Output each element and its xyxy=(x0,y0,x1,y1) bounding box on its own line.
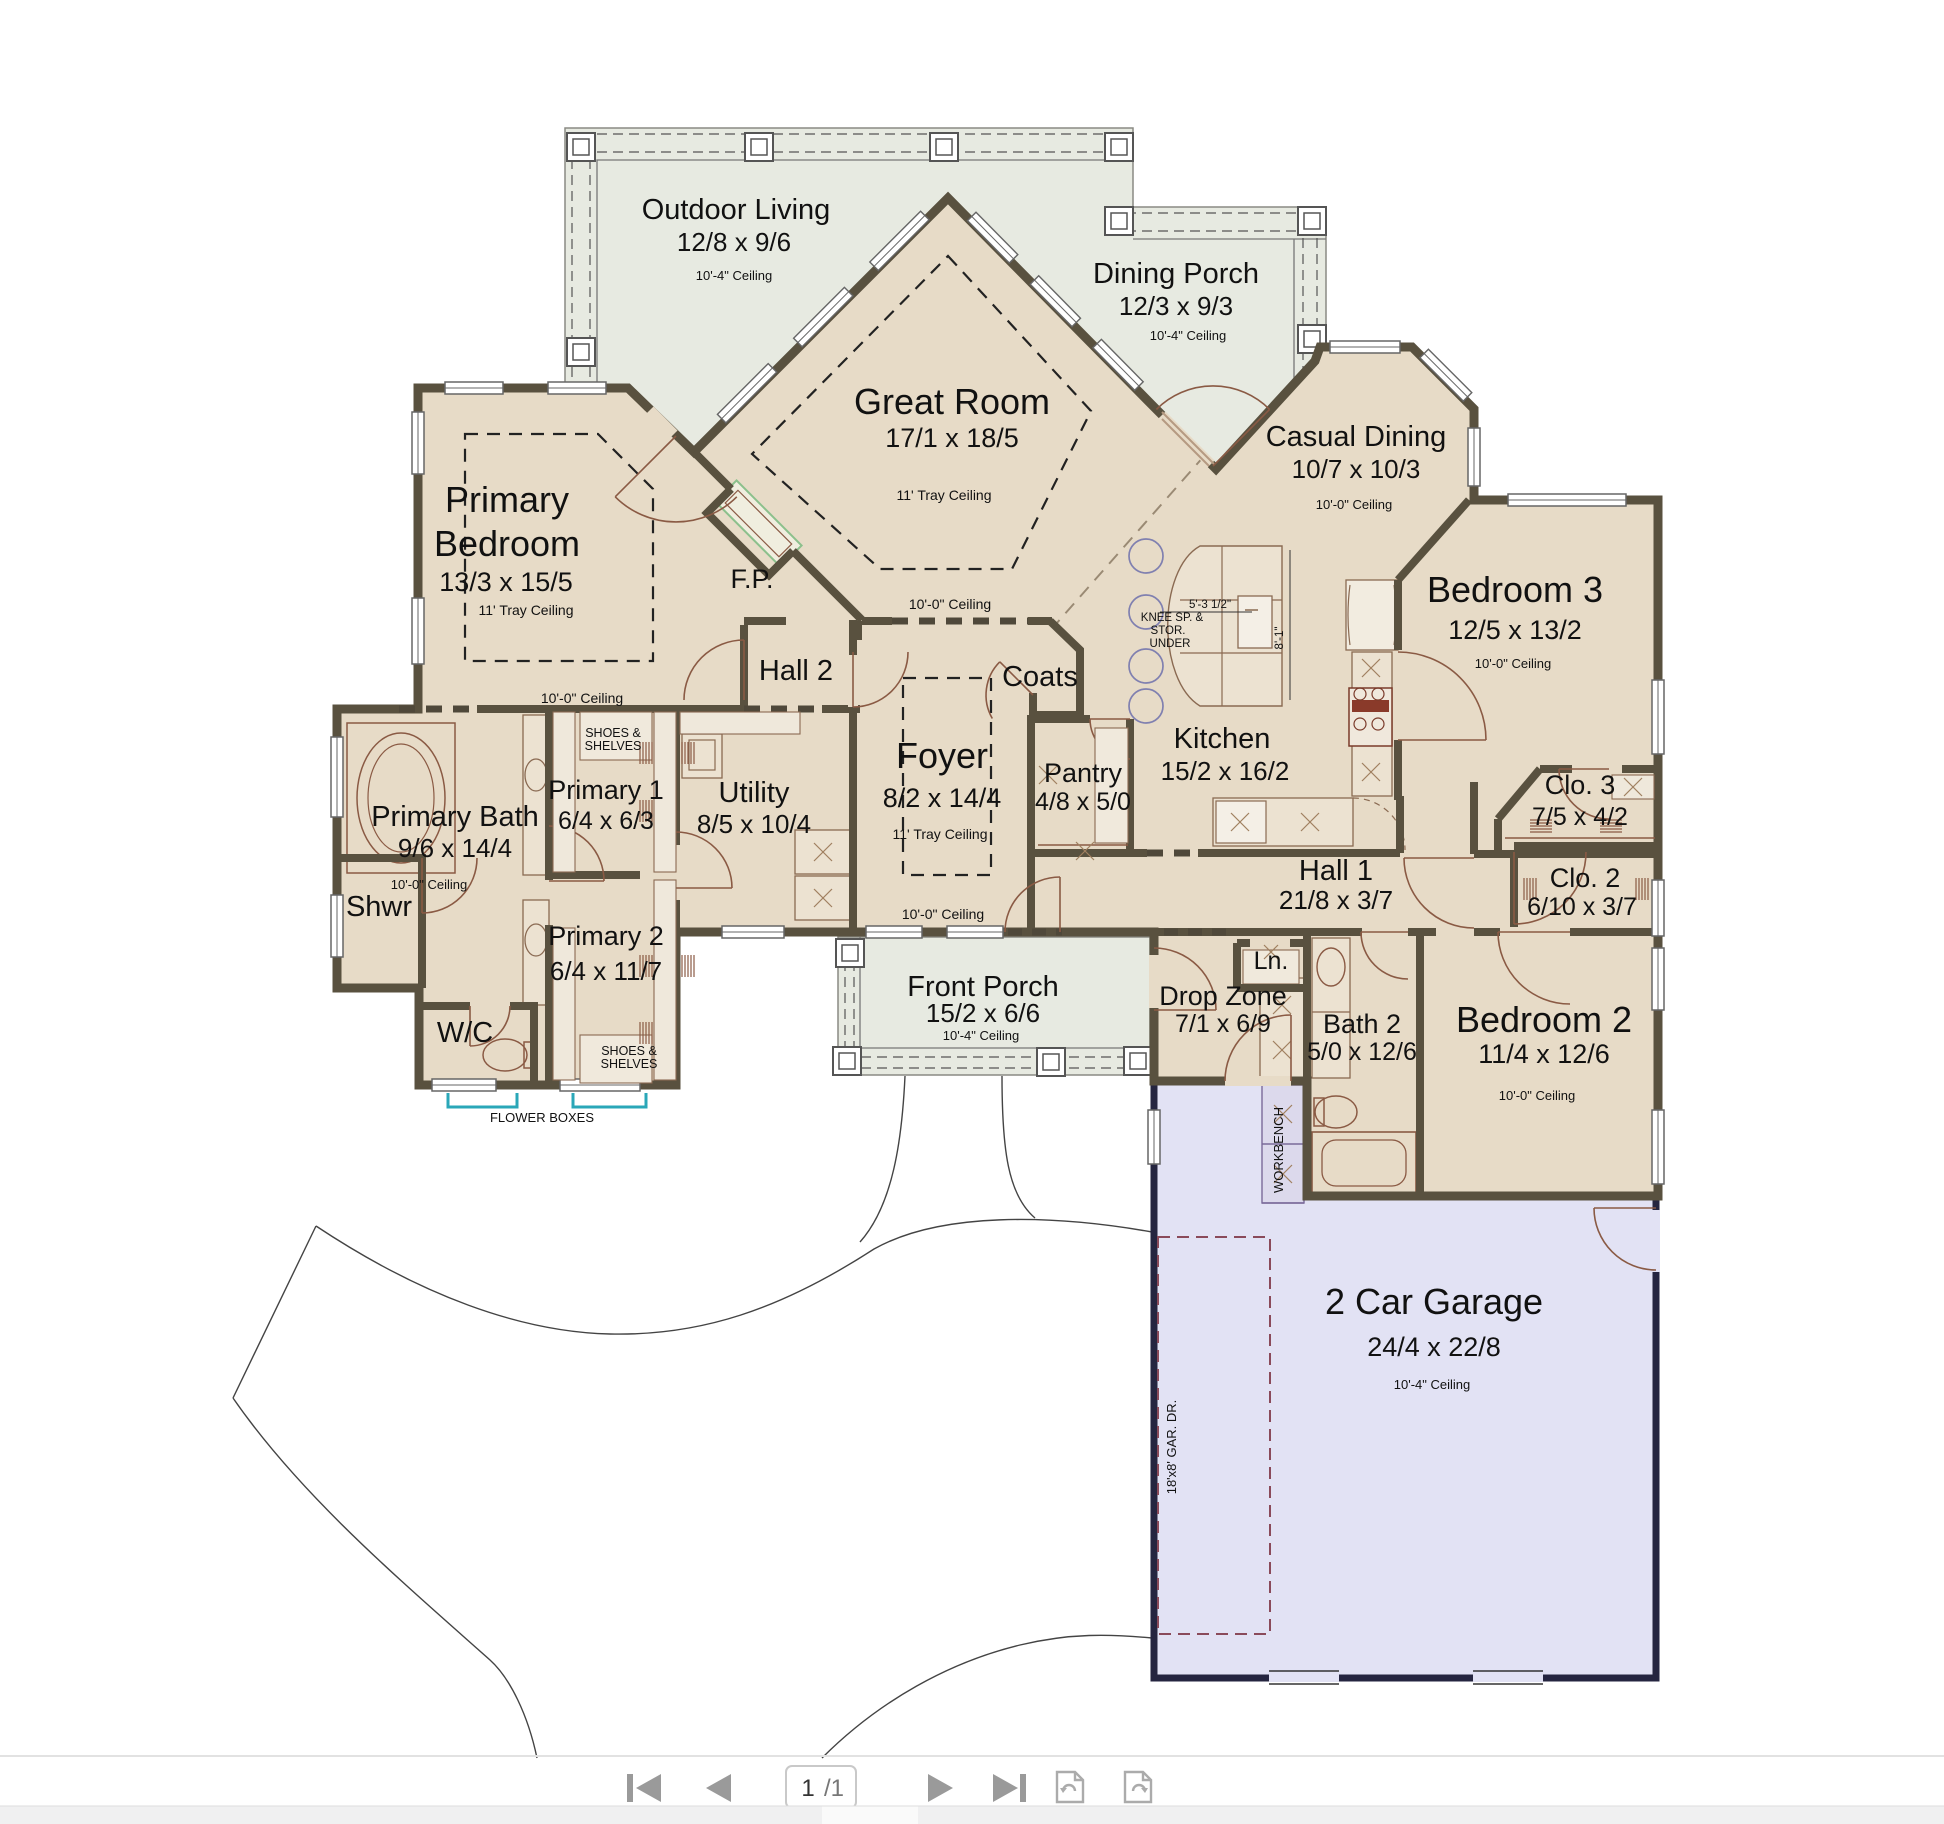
svg-text:SHELVES: SHELVES xyxy=(601,1057,658,1071)
svg-text:WORKBENCH: WORKBENCH xyxy=(1271,1107,1286,1193)
svg-text:10'-0" Ceiling: 10'-0" Ceiling xyxy=(902,906,984,922)
svg-text:10'-0" Ceiling: 10'-0" Ceiling xyxy=(541,690,623,706)
svg-text:/1: /1 xyxy=(824,1775,844,1802)
svg-text:11' Tray Ceiling: 11' Tray Ceiling xyxy=(892,826,987,842)
svg-text:FLOWER BOXES: FLOWER BOXES xyxy=(490,1110,594,1125)
svg-text:Outdoor Living: Outdoor Living xyxy=(642,194,831,226)
svg-text:Dining Porch: Dining Porch xyxy=(1093,258,1259,290)
svg-text:Shwr: Shwr xyxy=(346,891,412,923)
svg-text:Ln.: Ln. xyxy=(1254,947,1289,975)
svg-text:6/4 x 11/7: 6/4 x 11/7 xyxy=(550,956,662,986)
svg-text:STOR.: STOR. xyxy=(1151,625,1186,637)
svg-text:6/10 x 3/7: 6/10 x 3/7 xyxy=(1527,893,1637,921)
svg-text:5'-3 1/2": 5'-3 1/2" xyxy=(1189,599,1231,611)
svg-text:10'-0" Ceiling: 10'-0" Ceiling xyxy=(391,877,467,892)
svg-text:Hall 2: Hall 2 xyxy=(759,655,833,687)
svg-text:7/5 x 4/2: 7/5 x 4/2 xyxy=(1532,803,1628,831)
svg-text:Primary Bath: Primary Bath xyxy=(371,801,539,833)
svg-text:7/1 x 6/9: 7/1 x 6/9 xyxy=(1175,1010,1271,1038)
svg-text:F.P.: F.P. xyxy=(730,564,773,594)
svg-text:SHOES &: SHOES & xyxy=(585,726,641,740)
svg-text:Bedroom 2: Bedroom 2 xyxy=(1456,999,1632,1040)
svg-text:6/4 x 6/3: 6/4 x 6/3 xyxy=(558,807,654,835)
svg-text:10'-0" Ceiling: 10'-0" Ceiling xyxy=(1499,1088,1575,1103)
svg-text:Casual Dining: Casual Dining xyxy=(1266,421,1447,453)
svg-text:11' Tray Ceiling: 11' Tray Ceiling xyxy=(896,487,991,503)
svg-text:Bedroom 3: Bedroom 3 xyxy=(1427,569,1603,610)
svg-text:KNEE SP. &: KNEE SP. & xyxy=(1141,612,1204,624)
svg-text:Foyer: Foyer xyxy=(896,735,988,776)
svg-text:Pantry: Pantry xyxy=(1044,758,1123,788)
svg-text:10/7 x 10/3: 10/7 x 10/3 xyxy=(1292,454,1421,484)
svg-text:Clo. 3: Clo. 3 xyxy=(1545,770,1616,800)
svg-text:SHELVES: SHELVES xyxy=(585,739,642,753)
svg-text:11/4 x 12/6: 11/4 x 12/6 xyxy=(1478,1039,1610,1069)
svg-text:10'-0" Ceiling: 10'-0" Ceiling xyxy=(1475,656,1551,671)
svg-text:SHOES &: SHOES & xyxy=(601,1044,657,1058)
svg-text:10'-0" Ceiling: 10'-0" Ceiling xyxy=(909,596,991,612)
svg-text:12/8 x 9/6: 12/8 x 9/6 xyxy=(677,227,791,257)
svg-text:2 Car Garage: 2 Car Garage xyxy=(1325,1281,1543,1322)
svg-text:15/2 x 6/6: 15/2 x 6/6 xyxy=(926,998,1040,1028)
svg-text:10'-4" Ceiling: 10'-4" Ceiling xyxy=(696,268,772,283)
svg-text:Primary 2: Primary 2 xyxy=(548,921,664,951)
svg-text:Utility: Utility xyxy=(719,777,790,809)
svg-text:W/C: W/C xyxy=(437,1017,493,1049)
svg-text:11' Tray Ceiling: 11' Tray Ceiling xyxy=(478,602,573,618)
svg-text:Clo. 2: Clo. 2 xyxy=(1550,863,1621,893)
svg-text:8'-1": 8'-1" xyxy=(1274,627,1286,650)
svg-text:24/4 x 22/8: 24/4 x 22/8 xyxy=(1367,1332,1501,1362)
svg-text:Primary: Primary xyxy=(445,479,569,520)
svg-text:21/8 x 3/7: 21/8 x 3/7 xyxy=(1279,885,1393,915)
svg-text:1: 1 xyxy=(801,1775,814,1802)
svg-text:10'-4" Ceiling: 10'-4" Ceiling xyxy=(1394,1377,1470,1392)
svg-text:Bedroom: Bedroom xyxy=(434,523,580,564)
svg-text:12/5 x 13/2: 12/5 x 13/2 xyxy=(1448,615,1582,645)
svg-text:Great Room: Great Room xyxy=(854,381,1050,422)
svg-text:UNDER: UNDER xyxy=(1150,638,1191,650)
svg-text:Bath 2: Bath 2 xyxy=(1323,1009,1401,1039)
svg-text:Hall 1: Hall 1 xyxy=(1299,855,1373,887)
svg-text:17/1 x 18/5: 17/1 x 18/5 xyxy=(885,423,1019,453)
svg-text:5/0 x 12/6: 5/0 x 12/6 xyxy=(1307,1038,1417,1066)
svg-text:8/2 x 14/4: 8/2 x 14/4 xyxy=(883,783,1002,813)
svg-text:8/5 x 10/4: 8/5 x 10/4 xyxy=(697,809,811,839)
svg-text:Drop Zone: Drop Zone xyxy=(1159,981,1287,1011)
svg-text:12/3 x 9/3: 12/3 x 9/3 xyxy=(1119,291,1233,321)
svg-text:15/2 x 16/2: 15/2 x 16/2 xyxy=(1161,756,1290,786)
svg-text:18'x8' GAR. DR.: 18'x8' GAR. DR. xyxy=(1164,1400,1179,1495)
svg-text:Primary 1: Primary 1 xyxy=(548,775,664,805)
svg-text:10'-4" Ceiling: 10'-4" Ceiling xyxy=(1150,328,1226,343)
svg-text:Kitchen: Kitchen xyxy=(1174,723,1271,755)
svg-text:10'-4" Ceiling: 10'-4" Ceiling xyxy=(943,1028,1019,1043)
svg-text:9/6 x 14/4: 9/6 x 14/4 xyxy=(398,833,512,863)
svg-text:4/8 x 5/0: 4/8 x 5/0 xyxy=(1035,788,1131,816)
svg-text:10'-0" Ceiling: 10'-0" Ceiling xyxy=(1316,497,1392,512)
svg-text:Coats: Coats xyxy=(1002,661,1078,693)
svg-text:13/3 x 15/5: 13/3 x 15/5 xyxy=(439,567,573,597)
